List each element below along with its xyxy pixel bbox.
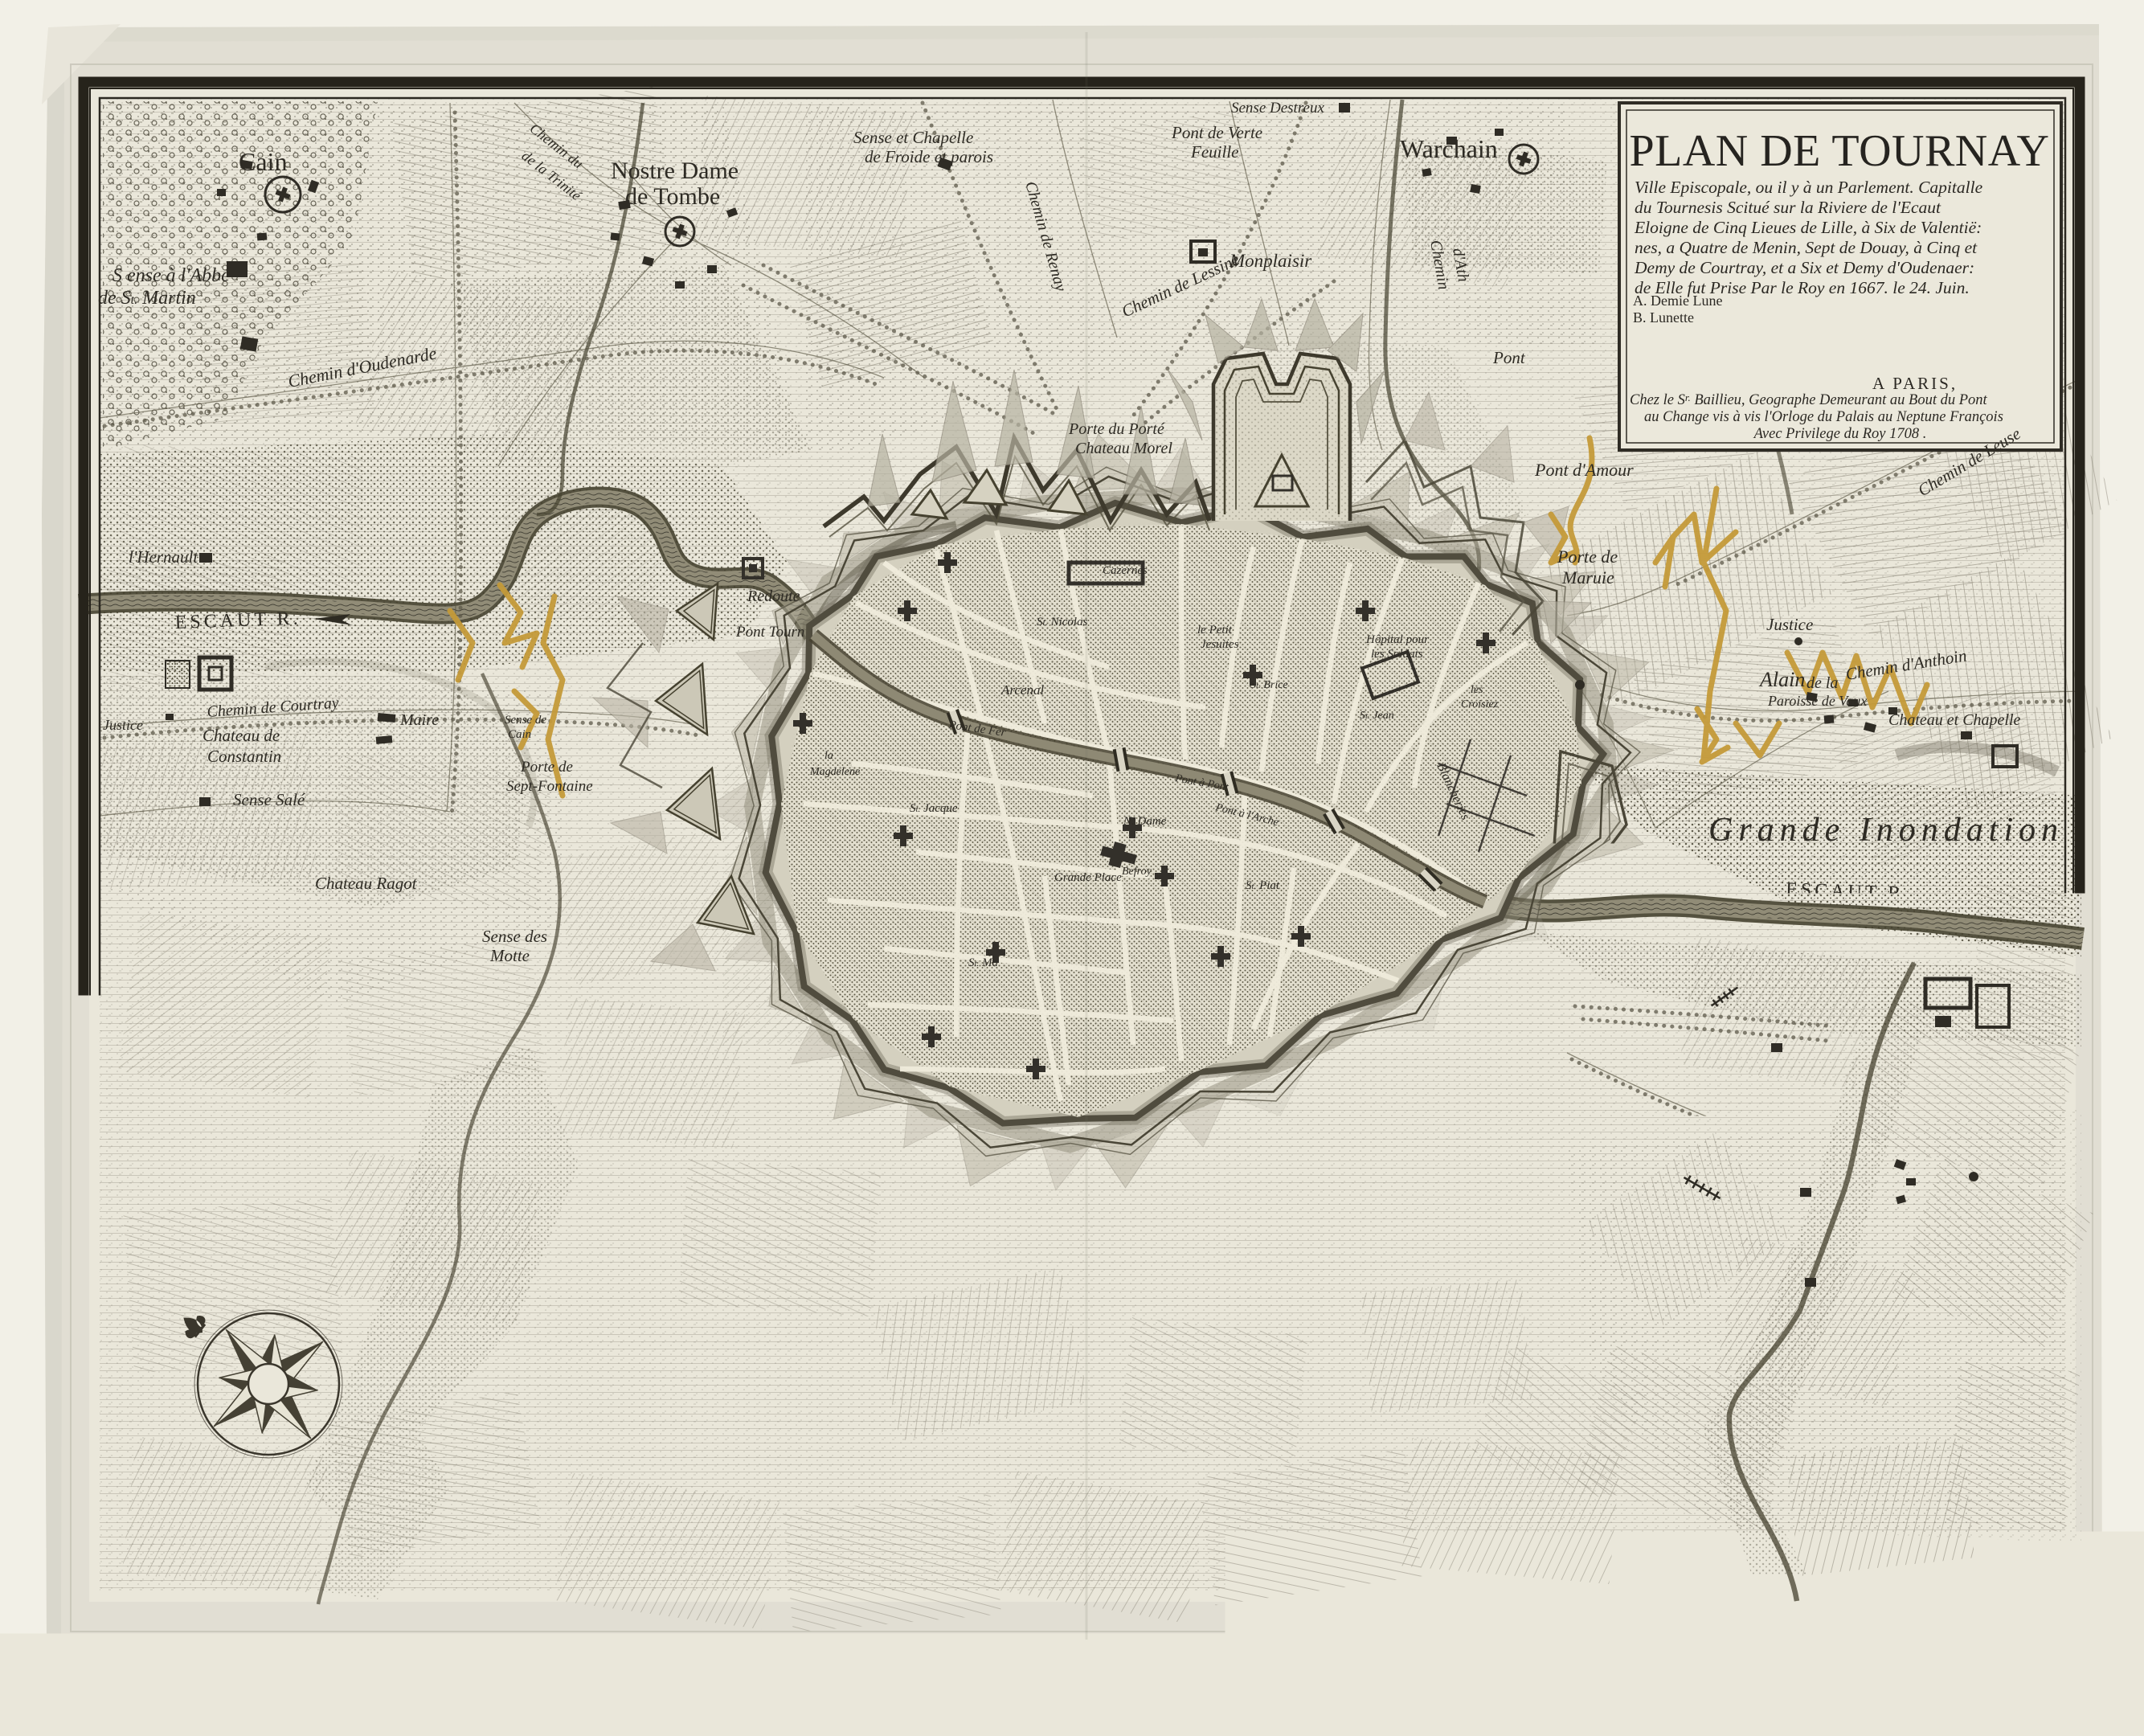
svg-text:St. Nicolas: St. Nicolas	[1037, 616, 1088, 628]
svg-text:le Ponchelet: le Ponchelet	[1877, 1200, 1958, 1218]
svg-text:Grande Inondation: Grande Inondation	[1708, 812, 2064, 849]
svg-text:Orcq: Orcq	[564, 1292, 612, 1319]
svg-text:250.: 250.	[1953, 1575, 1974, 1588]
svg-text:Feuille: Feuille	[1190, 142, 1238, 162]
svg-text:Sept-Fontaine: Sept-Fontaine	[506, 778, 593, 795]
svg-text:Porte de: Porte de	[520, 759, 573, 776]
svg-text:10. 30. 50.: 10. 30. 50.	[1757, 1575, 1808, 1588]
svg-text:Demy de Courtray, et a Six et: Demy de Courtray, et a Six et Demy d'Oud…	[1634, 258, 1974, 277]
svg-text:ou Marquain: ou Marquain	[543, 1275, 627, 1293]
svg-text:Sense: Sense	[1745, 1026, 1778, 1042]
svg-text:les Soldats: les Soldats	[1371, 648, 1423, 661]
svg-text:S ense à l'Abbé: S ense à l'Abbé	[113, 265, 231, 286]
svg-text:Porte de: Porte de	[706, 1034, 765, 1054]
svg-text:de la: de la	[1806, 674, 1838, 692]
svg-text:Pont de Verte: Pont de Verte	[1171, 123, 1262, 142]
svg-text:Porte St.: Porte St.	[1163, 1181, 1217, 1198]
svg-text:Hotel de: Hotel de	[1160, 907, 1199, 919]
svg-text:Chateau et Chapelle: Chateau et Chapelle	[1888, 711, 2021, 729]
svg-text:Grande Place: Grande Place	[1054, 871, 1122, 884]
svg-text:Pont Tourn: Pont Tourn	[735, 624, 804, 641]
svg-text:200.: 200.	[1911, 1575, 1932, 1588]
svg-text:PLAN DE TOURNAY: PLAN DE TOURNAY	[1630, 126, 2050, 176]
svg-text:Sense Destreux: Sense Destreux	[1231, 100, 1324, 117]
svg-text:Moulin de: Moulin de	[1982, 1161, 2046, 1177]
svg-text:St. Jacque: St. Jacque	[910, 802, 958, 815]
svg-text:la: la	[824, 750, 833, 762]
svg-text:Martin: Martin	[1166, 1200, 1212, 1218]
svg-text:les Jesuites: les Jesuites	[1254, 917, 1305, 929]
svg-text:Porte du Porté: Porte du Porté	[1068, 420, 1165, 438]
svg-text:4: 4	[1350, 1167, 1359, 1187]
svg-text:Porte du: Porte du	[1441, 1242, 1500, 1261]
svg-text:Sense Salé: Sense Salé	[233, 790, 306, 809]
svg-text:Louvetout: Louvetout	[1820, 1279, 1885, 1296]
svg-text:Lille: Lille	[719, 1055, 751, 1075]
svg-text:Desnouville: Desnouville	[358, 1497, 439, 1517]
svg-text:Vieux Aby: Vieux Aby	[1913, 1058, 2009, 1083]
svg-text:de Froide et parois: de Froide et parois	[865, 147, 993, 166]
svg-text:3: 3	[1442, 1165, 1451, 1185]
svg-text:Ville Episcopale, ou il y à un: Ville Episcopale, ou il y à un Parlement…	[1635, 178, 1983, 197]
svg-text:St. Martin: St. Martin	[1250, 1371, 1310, 1388]
svg-text:Echelle de Trois Cent Toises .: Echelle de Trois Cent Toises .	[1762, 1538, 1982, 1558]
svg-text:Chateau Ragot: Chateau Ragot	[315, 874, 418, 893]
svg-text:EXPLICATION,: EXPLICATION,	[1787, 1442, 1972, 1466]
svg-text:7: 7	[1412, 1106, 1422, 1126]
svg-text:Eloigne de Cinq Lieues de Lill: Eloigne de Cinq Lieues de Lille, à Six d…	[1634, 218, 1982, 237]
svg-text:6: 6	[1366, 1136, 1375, 1157]
svg-text:Sense de: Sense de	[505, 714, 546, 727]
svg-text:Chapelle: Chapelle	[1636, 995, 1692, 1012]
svg-text:Froienne: Froienne	[193, 1038, 279, 1065]
svg-text:A PARIS,: A PARIS,	[1872, 374, 1958, 393]
svg-text:de St. Martin: de St. Martin	[98, 288, 196, 309]
svg-text:Faubourg d'Orcq: Faubourg d'Orcq	[681, 1240, 793, 1258]
svg-text:Fontaine St. Eloy: Fontaine St. Eloy	[157, 1094, 267, 1112]
svg-text:1: 1	[1397, 1037, 1405, 1057]
svg-text:Chateau Anart: Chateau Anart	[313, 1007, 414, 1026]
svg-text:Constantin: Constantin	[207, 747, 281, 766]
svg-text:minicains: minicains	[1024, 937, 1065, 949]
svg-text:St. Brice: St. Brice	[1250, 679, 1288, 691]
svg-text:Chez le Sr. Baillieu, Geograp: Chez le Sr. Baillieu, Geographe Demeuran…	[1630, 391, 1988, 408]
svg-text:l'Hernault: l'Hernault	[129, 547, 198, 567]
svg-text:St. Marc: St. Marc	[968, 956, 1008, 969]
svg-text:Cornet: Cornet	[1789, 1149, 1832, 1166]
svg-text:Jesuites: Jesuites	[1201, 638, 1239, 651]
svg-text:Redoute: Redoute	[747, 588, 800, 605]
svg-text:Cabaret: Cabaret	[1792, 1167, 1842, 1184]
svg-text:Avec Privilege du Roy 1708 .: Avec Privilege du Roy 1708 .	[1753, 426, 1927, 442]
svg-text:Hôpital pour: Hôpital pour	[1365, 633, 1429, 646]
svg-text:Cain: Cain	[508, 728, 531, 741]
svg-text:Magdelene: Magdelene	[809, 766, 860, 778]
svg-text:7. Puits .: 7. Puits .	[1890, 1511, 1945, 1528]
svg-text:les Sion: les Sion	[1097, 931, 1130, 943]
svg-text:Alain: Alain	[1758, 668, 1805, 691]
svg-text:Faubourg: Faubourg	[1235, 1352, 1296, 1369]
svg-text:au Change vis à vis l'Orloge d: au Change vis à vis l'Orloge du Palais a…	[1644, 409, 2003, 425]
svg-text:Chateau: Chateau	[101, 997, 153, 1013]
svg-text:150.: 150.	[1869, 1575, 1890, 1588]
svg-text:ESCAUT R.: ESCAUT R.	[174, 608, 301, 633]
svg-text:Motte: Motte	[489, 946, 530, 965]
svg-text:Ville: Ville	[1167, 922, 1187, 934]
svg-text:Sauty: Sauty	[1993, 1178, 2027, 1195]
svg-text:Chateau de: Chateau de	[203, 726, 280, 745]
svg-text:LA CITADELLE: LA CITADELLE	[1528, 1108, 1725, 1134]
svg-text:Maruie: Maruie	[1561, 567, 1614, 588]
svg-text:Cain: Cain	[239, 147, 287, 176]
svg-text:le Petit: le Petit	[1197, 624, 1233, 637]
svg-text:Arcenal: Arcenal	[1000, 682, 1044, 698]
svg-text:ESCAUT R.: ESCAUT R.	[1786, 879, 1913, 904]
svg-text:Warchain: Warchain	[1400, 134, 1498, 163]
svg-text:A. Demie Lune: A. Demie Lune	[1633, 293, 1722, 309]
svg-text:Croisiez: Croisiez	[1461, 698, 1499, 710]
svg-text:Chateau Morel: Chateau Morel	[1075, 440, 1172, 457]
svg-text:Valenciennes: Valenciennes	[1463, 931, 1547, 949]
svg-text:100.: 100.	[1826, 1575, 1847, 1588]
svg-text:St. Piat: St. Piat	[1246, 879, 1280, 892]
svg-text:Secours: Secours	[1451, 1263, 1505, 1282]
svg-text:du Tournesis Scitué sur la Riv: du Tournesis Scitué sur la Riviere de l'…	[1635, 198, 1941, 217]
svg-text:Monplaisir: Monplaisir	[1229, 251, 1312, 271]
svg-text:St. Nicaise: St. Nicaise	[1059, 1003, 1109, 1016]
svg-text:Maire: Maire	[399, 711, 439, 729]
svg-text:Justice: Justice	[1766, 615, 1813, 634]
svg-text:B. Lunette: B. Lunette	[1633, 309, 1694, 325]
svg-text:les: les	[1471, 684, 1483, 696]
svg-text:nes, a Quatre de Menin, Sept d: nes, a Quatre de Menin, Sept de Douay, à…	[1635, 238, 1978, 257]
svg-text:les Do: les Do	[1029, 924, 1056, 936]
svg-text:Sense des: Sense des	[482, 927, 547, 946]
svg-text:Porte de: Porte de	[1557, 547, 1618, 567]
svg-text:N. Dame: N. Dame	[1123, 815, 1167, 828]
svg-text:Chat' de Marliere: Chat' de Marliere	[529, 1258, 644, 1275]
svg-text:5: 5	[1328, 1085, 1336, 1105]
svg-text:Nostre Dame: Nostre Dame	[611, 158, 739, 184]
svg-text:Pont: Pont	[1492, 348, 1526, 367]
svg-text:Paroisse de Vaux: Paroisse de Vaux	[1767, 693, 1867, 709]
svg-text:Sense et Chapelle: Sense et Chapelle	[853, 128, 973, 147]
svg-text:300 Toises.: 300 Toises.	[1991, 1575, 2045, 1588]
svg-text:le Val Comanderie: le Val Comanderie	[837, 1238, 951, 1255]
svg-text:Porte de: Porte de	[1471, 912, 1527, 930]
svg-text:Fontaine de: Fontaine de	[353, 1478, 435, 1497]
svg-text:Befroy: Befroy	[1122, 866, 1152, 878]
svg-text:F m 3445 A: F m 3445 A	[1919, 1636, 2132, 1678]
svg-text:de Tombe: de Tombe	[625, 183, 720, 210]
svg-text:d'Evêque: d'Evêque	[1739, 1042, 1792, 1058]
svg-text:Pont d'Amour: Pont d'Amour	[1534, 460, 1634, 480]
svg-text:Pont à Rieux: Pont à Rieux	[1672, 1359, 1761, 1378]
svg-text:St. Jean: St. Jean	[1360, 710, 1394, 722]
svg-text:Justice: Justice	[103, 717, 143, 733]
svg-text:Cazernes: Cazernes	[1103, 564, 1148, 577]
